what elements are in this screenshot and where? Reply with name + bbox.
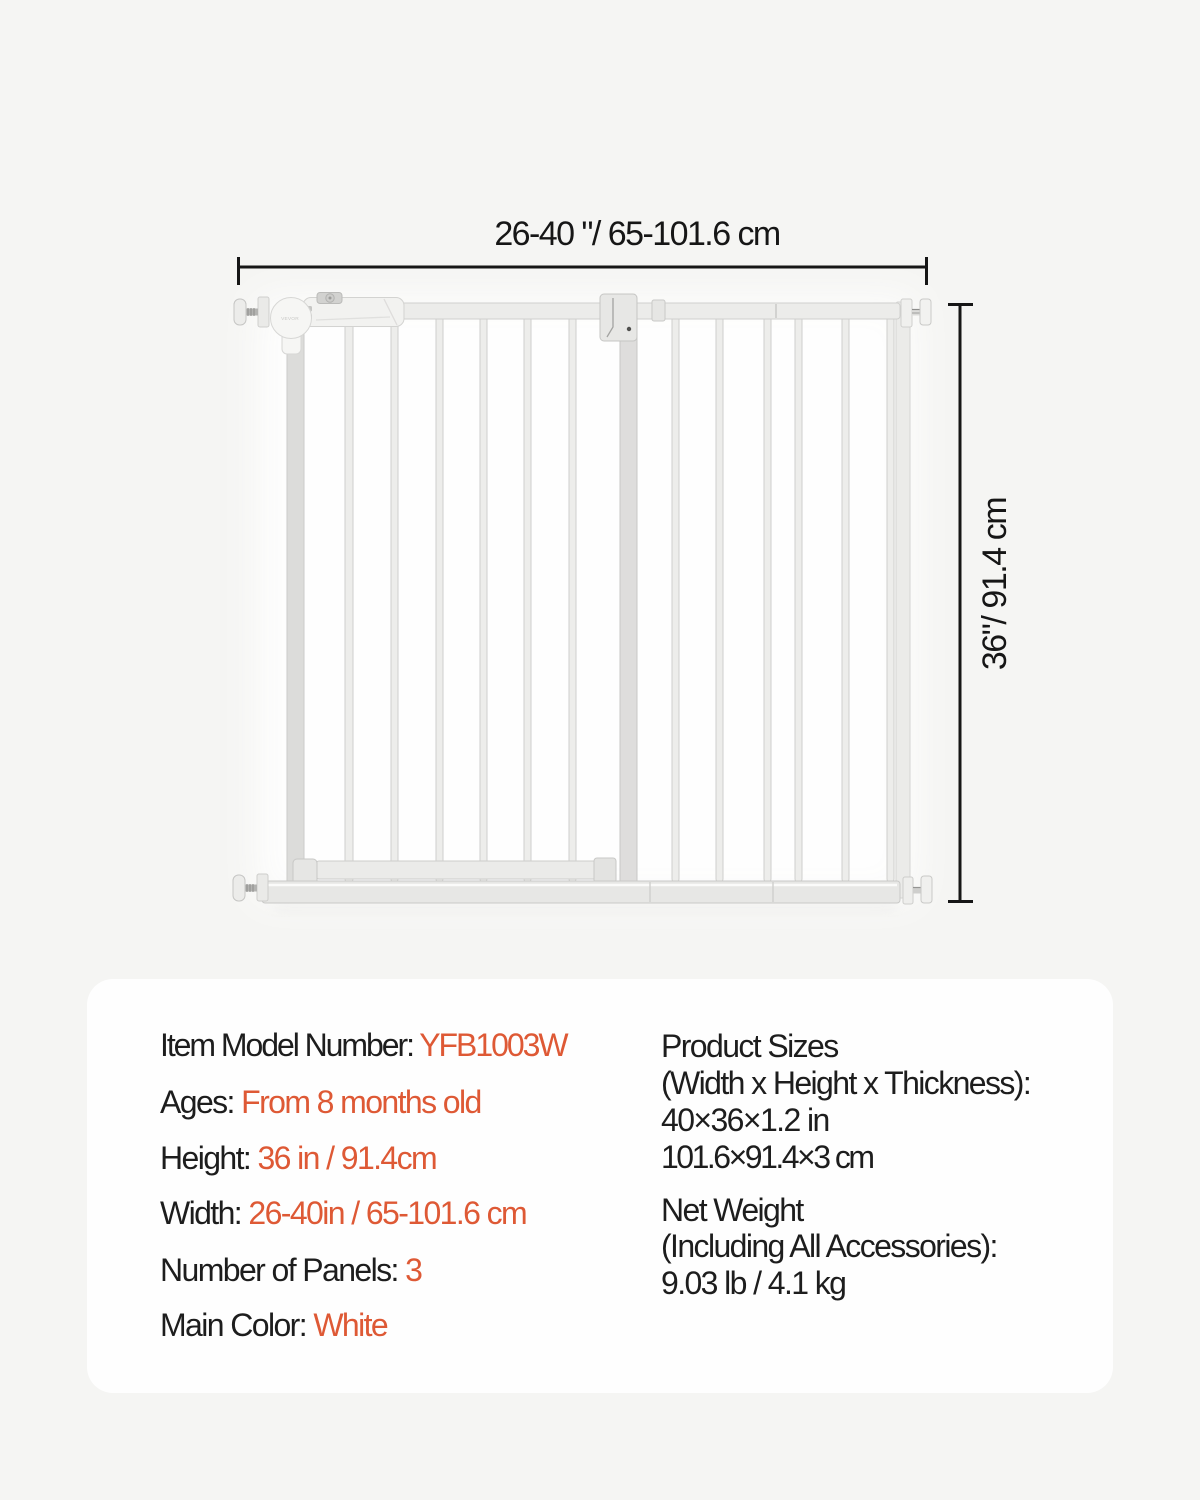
svg-text:36"/ 91.4 cm: 36"/ 91.4 cm bbox=[976, 498, 1014, 670]
svg-text:26-40 "/ 65-101.6 cm: 26-40 "/ 65-101.6 cm bbox=[494, 215, 780, 253]
svg-text:VEVOR: VEVOR bbox=[281, 316, 299, 322]
